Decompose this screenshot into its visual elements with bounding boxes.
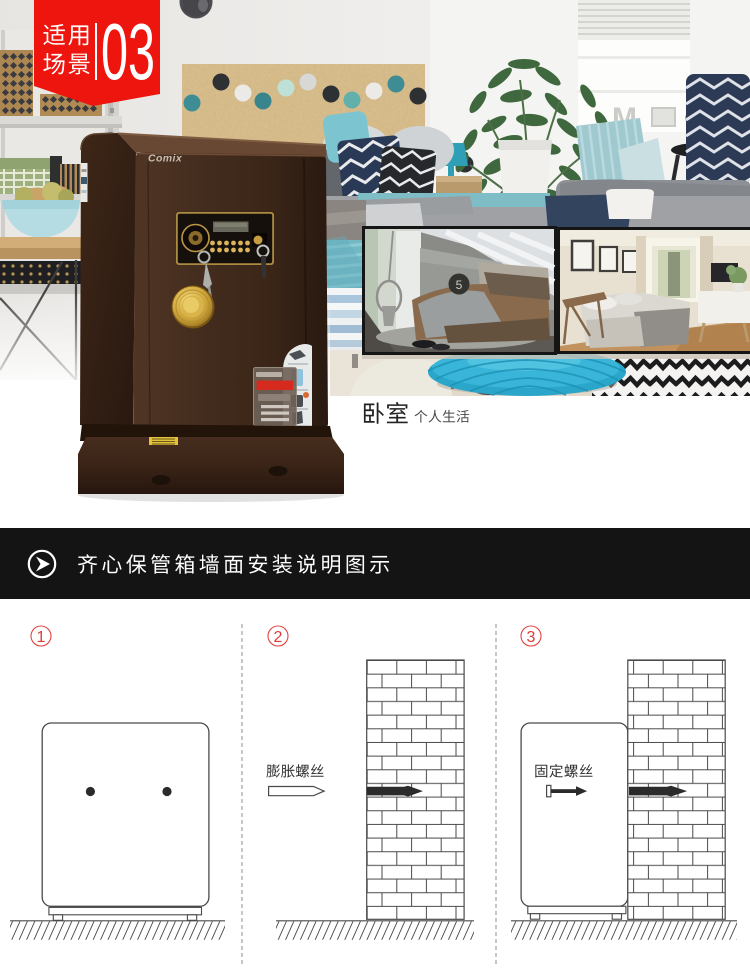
svg-text:Comix: Comix	[148, 153, 183, 165]
svg-text:1: 1	[37, 629, 46, 646]
svg-text:2: 2	[274, 629, 283, 646]
svg-text:3: 3	[527, 629, 536, 646]
svg-text:5: 5	[456, 278, 463, 292]
svg-text:03: 03	[101, 7, 155, 96]
